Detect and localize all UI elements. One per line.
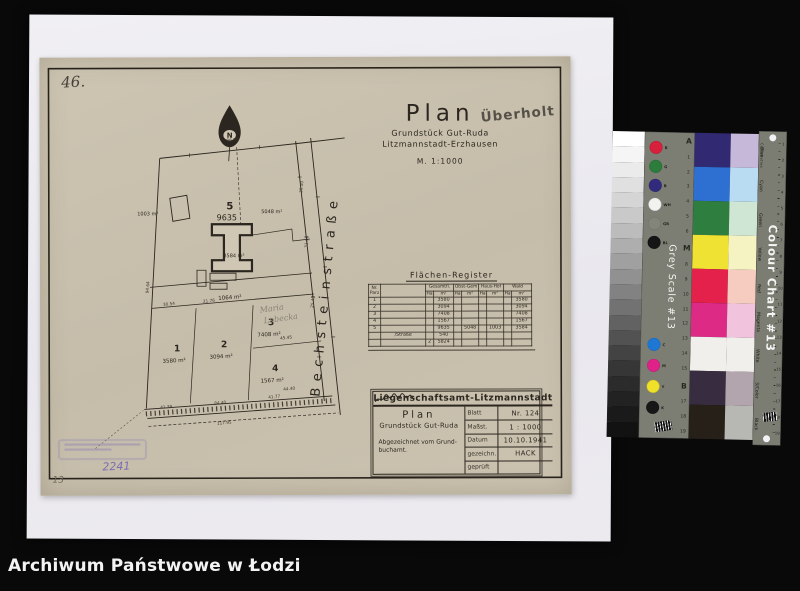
- colour-dot-icon: [649, 179, 662, 192]
- infobox-row: Blatt Nr. 124: [465, 406, 552, 420]
- scale-mark: 9: [685, 278, 688, 283]
- svg-text:Maria: Maria: [258, 302, 284, 315]
- survey-measurements: 86.08 94.64 30.50 31.16 25.43 45.45 44.4…: [144, 136, 316, 426]
- patch-strong: [689, 371, 726, 406]
- grey-step: [607, 406, 639, 422]
- north-arrow-icon: N: [218, 105, 240, 161]
- col-total: Gesamtfl.: [426, 284, 454, 291]
- grey-step: [607, 391, 639, 407]
- svg-text:117.95: 117.95: [217, 420, 232, 426]
- ruler-number: 9: [779, 270, 782, 275]
- svg-text:45.45: 45.45: [280, 334, 293, 340]
- patch-strong: [692, 235, 729, 270]
- plot4-area: 1567 m²: [260, 376, 284, 384]
- ruler-number: 4: [781, 190, 784, 195]
- scale-mark: 19: [680, 429, 686, 434]
- grey-step: [611, 207, 643, 223]
- colour-dot-icon: [648, 198, 661, 211]
- colour-patch-row: [694, 133, 759, 168]
- scale-mark: 14: [682, 351, 688, 356]
- scanned-plan-document: 46. N: [39, 56, 571, 495]
- register-row: 2 5824: [369, 339, 532, 346]
- grey-step: [609, 299, 641, 315]
- owner-handwriting: Maria Lubecka: [258, 302, 299, 325]
- ruler-number: 7: [780, 238, 783, 243]
- patch-tint: [727, 303, 756, 338]
- ruler-number: 16: [776, 382, 781, 387]
- register-table: Nr. Parz Gesamtfl. Obst-Gem Haus-Hof Wal…: [368, 283, 532, 346]
- colour-dot-row: GR: [648, 217, 671, 230]
- colour-patch-grid: [689, 133, 759, 440]
- grey-step: [613, 131, 645, 147]
- scale-mark: 1: [687, 155, 690, 160]
- patch-tint: [728, 235, 757, 270]
- colour-dot-row: WH: [648, 198, 671, 211]
- stamp-number-handwriting: 2241: [102, 459, 130, 473]
- ruler-number: 10: [778, 286, 783, 291]
- infobox-row: geprüft: [465, 460, 552, 474]
- ruler-number: 12: [777, 318, 782, 323]
- page-number-handwriting: 46.: [60, 72, 86, 91]
- grey-step: [610, 253, 642, 269]
- plot-labels: 5 9635 1003 m² 5048 m² 3584 m² 1064 m² 1…: [137, 201, 284, 385]
- ruler-number: 1: [782, 142, 785, 147]
- scale-mark: 10: [683, 292, 689, 297]
- signature-scribble: [373, 392, 415, 405]
- colour-dot-row: K: [646, 401, 665, 414]
- scale-mark: 2: [687, 170, 690, 175]
- ruler-number: 14: [776, 350, 781, 355]
- plot3-area: 7408 m²: [257, 330, 281, 338]
- patch-tint: [727, 269, 756, 304]
- patch-name: 3/Color: [753, 373, 759, 407]
- grey-step: [608, 360, 640, 376]
- svg-text:41.77: 41.77: [268, 394, 281, 400]
- patch-name: Magenta: [755, 305, 761, 339]
- patch-tint: [729, 167, 758, 202]
- grey-scale-title: Grey Scale #13: [665, 244, 678, 330]
- patch-strong: [691, 303, 728, 338]
- colour-patch-row: [689, 405, 754, 440]
- title-subject: Grundstück Gut-Ruda: [378, 128, 503, 137]
- colour-patch-row: [690, 337, 755, 372]
- colour-dot-row: G: [649, 160, 672, 173]
- ruler-number: 15: [776, 366, 781, 371]
- colour-dot-icon: [647, 359, 660, 372]
- ruler-number: 11: [777, 302, 782, 307]
- svg-text:30.54: 30.54: [163, 301, 176, 307]
- building-footprints: [170, 195, 252, 289]
- colour-dot-icon: [649, 160, 662, 173]
- scale-mark: 17: [681, 400, 687, 405]
- ruler-number: 2: [782, 158, 785, 163]
- colour-dot-icon: [646, 401, 659, 414]
- grey-step: [611, 223, 643, 239]
- colour-patch-row: [693, 201, 758, 236]
- ruler-hole: [769, 134, 776, 141]
- plot1-area: 3580 m²: [162, 357, 186, 365]
- scale-mark: B: [681, 381, 687, 390]
- patch-name: Black: [752, 407, 758, 441]
- grey-step: [610, 238, 642, 254]
- grey-scale-ruler: A123456M89101112131415B171819 R G B WH: [639, 132, 695, 439]
- grey-step: [607, 376, 639, 392]
- svg-text:94.64: 94.64: [145, 281, 151, 294]
- plot5-left-area: 1003 m²: [137, 211, 158, 217]
- scale-mark: 11: [683, 307, 689, 312]
- colour-dot-icon: [649, 141, 662, 154]
- plot2-area: 3094 m²: [209, 353, 233, 361]
- scale-mark: 8: [685, 263, 688, 268]
- svg-text:31.16: 31.16: [303, 235, 309, 248]
- col-orchard: Obst-Gem: [454, 284, 479, 291]
- col-name: [381, 284, 426, 297]
- grey-step: [612, 146, 644, 162]
- patch-strong: [693, 201, 730, 236]
- street-name-label: Bechsteinstraße: [308, 194, 342, 397]
- ruler-hole: [763, 435, 770, 442]
- patch-name: Blue: [758, 135, 764, 169]
- barcode-logo-icon: [763, 412, 778, 422]
- colour-calibration-chart: A123456M89101112131415B171819 R G B WH: [606, 128, 787, 446]
- plot4-number: 4: [272, 364, 278, 374]
- scale-mark: 15: [681, 366, 687, 371]
- grey-step: [609, 284, 641, 300]
- colour-dot-icon: [648, 217, 661, 230]
- centimetre-ruler: Centimetres BlueCyanGreenYellowRedMagent…: [752, 131, 787, 446]
- infobox-row: Maßst. 1 : 1000: [465, 420, 552, 434]
- colour-dot-icon: [647, 236, 660, 249]
- grey-step: [612, 162, 644, 178]
- colour-dot-row: R: [649, 141, 672, 154]
- colour-patch-row: [693, 167, 758, 202]
- archival-scan-stage: 46. N: [0, 0, 800, 591]
- scale-mark: A: [686, 137, 692, 146]
- area-register: Flächen-Register Nr. Parz: [368, 262, 535, 350]
- patch-strong: [693, 167, 730, 202]
- scale-mark: 6: [686, 229, 689, 234]
- svg-text:44.40: 44.40: [283, 385, 296, 391]
- grey-step: [611, 192, 643, 208]
- patch-name: White: [754, 339, 760, 373]
- register-title: Flächen-Register: [406, 270, 497, 281]
- archive-ink-stamp: [58, 439, 146, 459]
- infobox-left-cell: Plan Grundstück Gut-Ruda Abgezeichnet vo…: [373, 407, 465, 474]
- title-scale: M. 1:1000: [378, 156, 503, 165]
- col-house: Haus-Hof: [479, 284, 504, 291]
- colour-dot-row: Y: [646, 380, 665, 393]
- archive-caption: Archiwum Państwowe w Łodzi: [8, 556, 301, 576]
- ruler-number: 19: [775, 430, 780, 435]
- grey-step: [609, 315, 641, 331]
- colour-dot-icon: [646, 380, 659, 393]
- infobox-row: gezeichn. HACK: [465, 447, 552, 461]
- svg-text:41.39: 41.39: [160, 404, 173, 410]
- ruler-number: 17: [775, 398, 780, 403]
- patch-tint: [726, 337, 755, 372]
- scale-mark: 12: [682, 322, 688, 327]
- patch-strong: [689, 405, 726, 440]
- colour-dot-row: C: [647, 338, 666, 351]
- ruler-number: 5: [781, 206, 784, 211]
- plot5-yard-area: 3584 m²: [223, 253, 244, 259]
- colour-dot-icon: [647, 338, 660, 351]
- corner-note-handwriting: 13: [53, 476, 65, 486]
- scale-mark: 5: [686, 214, 689, 219]
- patch-tint: [729, 201, 758, 236]
- grey-step: [607, 422, 639, 438]
- grey-step: [608, 345, 640, 361]
- patch-name: Red: [755, 271, 761, 305]
- plot1-number: 1: [174, 344, 180, 354]
- svg-text:Lubecka: Lubecka: [262, 312, 299, 326]
- scale-mark: 4: [686, 200, 689, 205]
- colour-patch-row: [691, 303, 756, 338]
- patch-name: Cyan: [757, 169, 763, 203]
- title-location: Litzmannstadt-Erzhausen: [378, 139, 503, 148]
- svg-text:30.50: 30.50: [298, 180, 304, 193]
- ruler-number: 3: [781, 174, 784, 179]
- ruler-number: 13: [777, 334, 782, 339]
- grey-step: [612, 177, 644, 193]
- infobox-rows: Blatt Nr. 124 Maßst. 1 : 1000 Datum 10.1…: [465, 406, 552, 473]
- patch-strong: [690, 337, 727, 372]
- patch-strong: [694, 133, 731, 168]
- colour-patch-row: [692, 235, 757, 270]
- colour-dot-row: B: [649, 179, 672, 192]
- patch-tint: [725, 371, 754, 406]
- colour-patch-row: [689, 371, 754, 406]
- plot5-right-area: 5048 m²: [261, 209, 282, 215]
- svg-text:84.40: 84.40: [214, 400, 227, 406]
- ruler-number: 8: [780, 254, 783, 259]
- land-office-infobox: Liegenschaftsamt-Litzmannstadt Plan Grun…: [372, 390, 540, 474]
- plot2-number: 2: [221, 340, 227, 350]
- colour-patch-row: [691, 269, 756, 304]
- rgb-dot-group: R G B WH GR BL: [647, 141, 672, 249]
- patch-name: Yellow: [756, 237, 762, 271]
- scale-mark: 18: [680, 415, 686, 420]
- barcode-logo-icon: [654, 420, 672, 432]
- patch-strong: [691, 269, 728, 304]
- plot5-number: 5: [226, 201, 233, 212]
- main-building-outline: [212, 224, 252, 271]
- grey-step: [608, 330, 640, 346]
- patch-name: Green: [757, 203, 763, 237]
- infobox-row: Datum 10.10.1941: [465, 433, 552, 447]
- colour-dot-row: M: [647, 359, 666, 372]
- cmyk-dot-group: C M Y K: [646, 338, 666, 414]
- ruler-number: 6: [780, 222, 783, 227]
- col-parcel: Nr. Parz: [369, 284, 381, 297]
- scale-mark: 3: [687, 185, 690, 190]
- patch-tint: [725, 405, 754, 440]
- scale-mark: M: [683, 244, 691, 253]
- grey-step: [610, 269, 642, 285]
- plot5-area: 9635: [217, 213, 237, 222]
- svg-text:25.43: 25.43: [309, 295, 315, 308]
- scale-mark: 13: [682, 337, 688, 342]
- patch-tint: [730, 133, 759, 168]
